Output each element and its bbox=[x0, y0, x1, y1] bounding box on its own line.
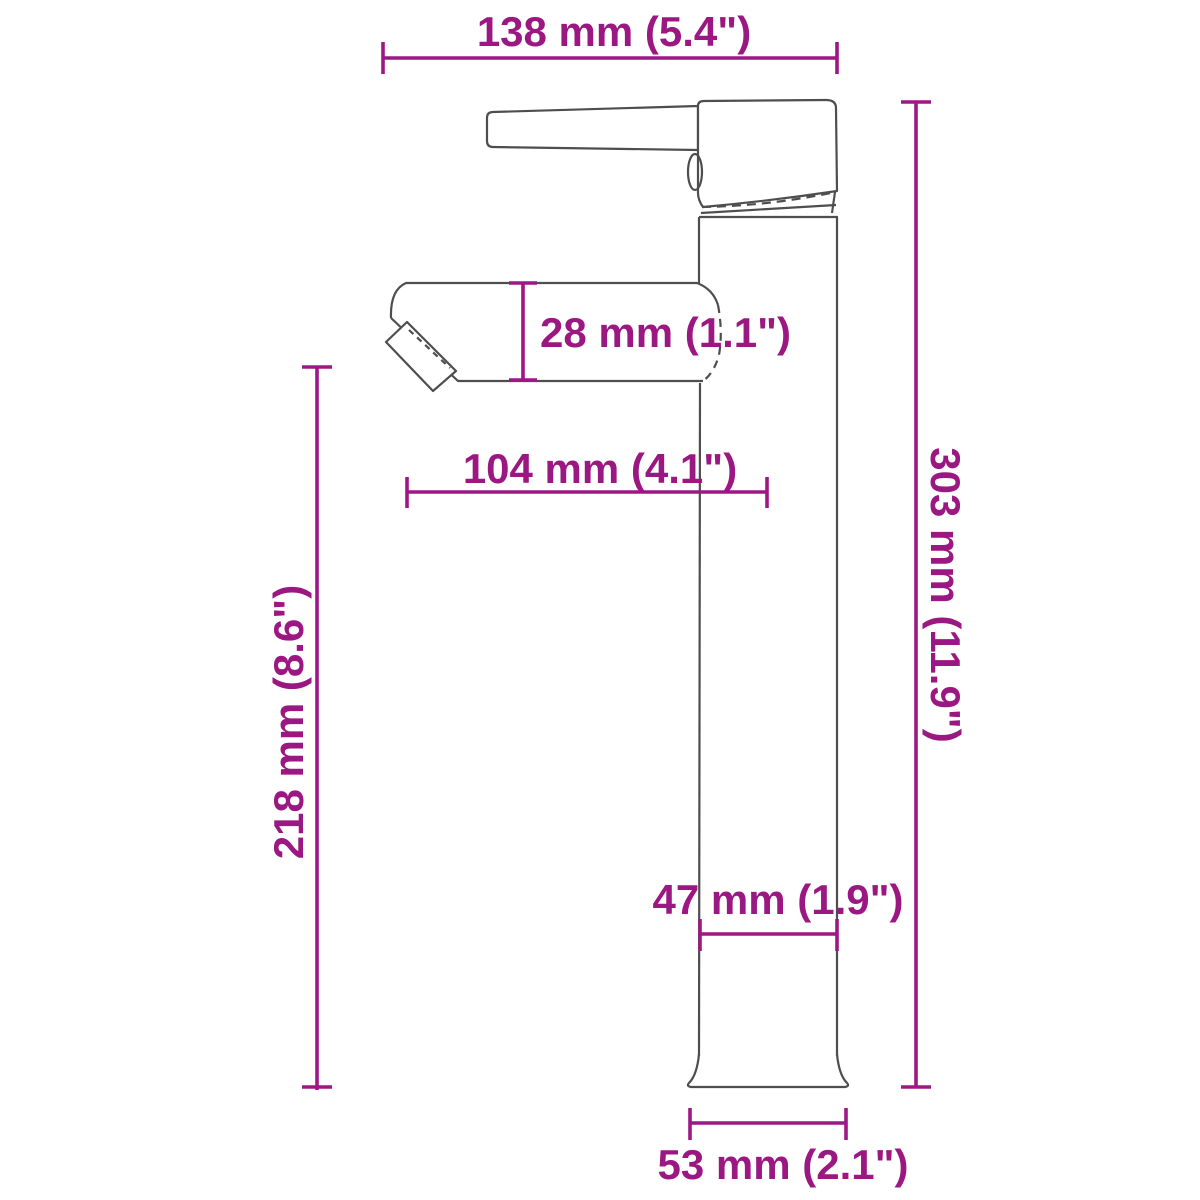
dim-label-base-width: 53 mm (2.1") bbox=[657, 1144, 908, 1186]
handle-head bbox=[698, 100, 837, 207]
head-notch bbox=[832, 192, 835, 213]
dim-label-spout-reach: 104 mm (4.1") bbox=[463, 448, 737, 490]
dim-label-outlet-height: 218 mm (8.6") bbox=[268, 585, 310, 859]
handle-lever bbox=[487, 106, 698, 150]
dim-body-width bbox=[700, 919, 837, 951]
dim-label-total-height: 303 mm (11.9") bbox=[924, 447, 966, 742]
dim-label-top-width: 138 mm (5.4") bbox=[477, 11, 751, 53]
faucet-dimension-diagram: 138 mm (5.4") 28 mm (1.1") 104 mm (4.1")… bbox=[0, 0, 1200, 1200]
diagram-canvas bbox=[0, 0, 1200, 1200]
dim-label-spout-height: 28 mm (1.1") bbox=[540, 312, 791, 354]
faucet-outline bbox=[386, 100, 848, 1087]
dim-label-body-width: 47 mm (1.9") bbox=[652, 879, 903, 921]
dim-base-width bbox=[690, 1108, 846, 1140]
